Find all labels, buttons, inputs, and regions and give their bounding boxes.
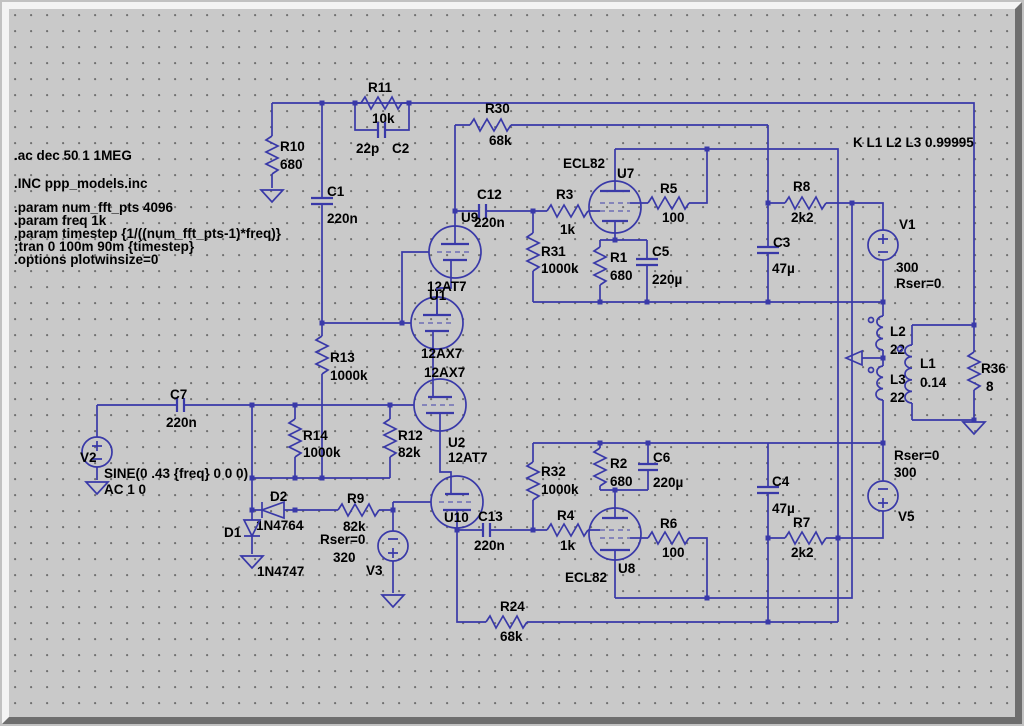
r30-value-label[interactable]: 68k <box>489 133 512 148</box>
c6-value-label[interactable]: 220µ <box>653 475 683 490</box>
r10-ref-label[interactable]: R10 <box>280 139 305 154</box>
d1-ref-label[interactable]: D1 <box>224 525 242 540</box>
r1-value-label[interactable]: 680 <box>610 268 633 283</box>
r4-value-label[interactable]: 1k <box>560 538 576 553</box>
v5-rser-label[interactable]: Rser=0 <box>894 448 939 463</box>
d1-model-label[interactable]: 1N4747 <box>257 564 304 579</box>
u7-type-label[interactable]: ECL82 <box>563 156 605 171</box>
r5-value-label[interactable]: 100 <box>662 210 685 225</box>
r12-value-label[interactable]: 82k <box>398 445 421 460</box>
l3-ref-label[interactable]: L3 <box>890 372 906 387</box>
u8-ref-label[interactable]: U8 <box>618 561 636 576</box>
r24-value-label[interactable]: 68k <box>500 629 523 644</box>
r10-value-label[interactable]: 680 <box>280 157 303 172</box>
canvas-bevel-frame: R11 10k 22p C2 R10 680 C1 220n R30 68k U… <box>2 2 1022 724</box>
u10-ref-label[interactable]: U10 <box>444 510 469 525</box>
u2-ref-label[interactable]: U2 <box>448 435 465 450</box>
u8-type-label[interactable]: ECL82 <box>565 570 607 585</box>
r12-ref-label[interactable]: R12 <box>398 428 423 443</box>
schematic-window: R11 10k 22p C2 R10 680 C1 220n R30 68k U… <box>0 0 1024 726</box>
r11-value-label[interactable]: 10k <box>372 111 395 126</box>
c2-value-label[interactable]: 22p <box>356 141 379 156</box>
l1-ref-label[interactable]: L1 <box>920 356 936 371</box>
c5-ref-label[interactable]: C5 <box>652 244 670 259</box>
r24-ref-label[interactable]: R24 <box>500 599 525 614</box>
c3-ref-label[interactable]: C3 <box>773 235 791 250</box>
v5-ref-label[interactable]: V5 <box>898 509 915 524</box>
u1-type-label[interactable]: 12AX7 <box>421 346 462 361</box>
c7-value-label[interactable]: 220n <box>166 415 197 430</box>
r13-value-label[interactable]: 1000k <box>330 368 368 383</box>
r8-ref-label[interactable]: R8 <box>793 179 811 194</box>
spice-directive[interactable]: .options plotwinsize=0 <box>14 252 158 267</box>
spice-directive[interactable]: .ac dec 50 1 1MEG <box>14 148 132 163</box>
c1-ref-label[interactable]: C1 <box>327 184 345 199</box>
v1-rser-label[interactable]: Rser=0 <box>896 276 941 291</box>
spice-directive[interactable]: .INC ppp_models.inc <box>14 176 148 191</box>
c12-value-label[interactable]: 220n <box>474 215 505 230</box>
c7-ref-label[interactable]: C7 <box>170 387 187 402</box>
r3-ref-label[interactable]: R3 <box>556 187 574 202</box>
l1-value-label[interactable]: 0.14 <box>920 375 947 390</box>
c3-value-label[interactable]: 47µ <box>772 261 795 276</box>
c13-value-label[interactable]: 220n <box>474 538 505 553</box>
c1-value-label[interactable]: 220n <box>327 211 358 226</box>
r1-ref-label[interactable]: R1 <box>610 250 628 265</box>
v3-value-label[interactable]: 320 <box>333 550 356 565</box>
l3-value-label[interactable]: 22 <box>890 390 905 405</box>
r14-ref-label[interactable]: R14 <box>303 428 328 443</box>
c5-value-label[interactable]: 220µ <box>652 272 682 287</box>
r6-value-label[interactable]: 100 <box>662 545 685 560</box>
r11-ref-label[interactable]: R11 <box>368 80 393 95</box>
v1-ref-label[interactable]: V1 <box>899 217 916 232</box>
r9-ref-label[interactable]: R9 <box>347 491 364 506</box>
v3-ref-label[interactable]: V3 <box>366 563 383 578</box>
v3-rser-label[interactable]: Rser=0 <box>320 532 365 547</box>
r13-ref-label[interactable]: R13 <box>330 350 355 365</box>
r32-ref-label[interactable]: R32 <box>541 464 566 479</box>
v2-sine-label[interactable]: SINE(0 .43 {freq} 0 0 0) <box>104 466 248 481</box>
d2-model-label[interactable]: 1N4764 <box>256 518 304 533</box>
r2-value-label[interactable]: 680 <box>610 474 633 489</box>
v2-ac-label[interactable]: AC 1 0 <box>104 482 146 497</box>
r8-value-label[interactable]: 2k2 <box>791 210 814 225</box>
u10-type-label[interactable]: 12AT7 <box>448 450 488 465</box>
u1-ref-label[interactable]: U1 <box>429 288 447 303</box>
coupling-statement[interactable]: K L1 L2 L3 0.99995 <box>853 135 974 150</box>
u7-ref-label[interactable]: U7 <box>617 166 634 181</box>
c4-value-label[interactable]: 47µ <box>772 501 795 516</box>
v1-value-label[interactable]: 300 <box>896 260 919 275</box>
r7-value-label[interactable]: 2k2 <box>791 545 814 560</box>
schematic-canvas[interactable]: R11 10k 22p C2 R10 680 C1 220n R30 68k U… <box>9 9 1015 717</box>
l2-ref-label[interactable]: L2 <box>890 324 906 339</box>
c6-ref-label[interactable]: C6 <box>653 450 671 465</box>
r36-ref-label[interactable]: R36 <box>981 361 1006 376</box>
r4-ref-label[interactable]: R4 <box>557 508 575 523</box>
r3-value-label[interactable]: 1k <box>560 222 576 237</box>
r32-value-label[interactable]: 1000k <box>541 482 579 497</box>
c13-ref-label[interactable]: C13 <box>478 509 503 524</box>
r36-value-label[interactable]: 8 <box>986 379 994 394</box>
r14-value-label[interactable]: 1000k <box>303 445 341 460</box>
r7-ref-label[interactable]: R7 <box>793 515 810 530</box>
r31-ref-label[interactable]: R31 <box>541 244 566 259</box>
c2-ref-label[interactable]: C2 <box>392 141 409 156</box>
r30-ref-label[interactable]: R30 <box>485 101 510 116</box>
d2-ref-label[interactable]: D2 <box>270 489 287 504</box>
c4-ref-label[interactable]: C4 <box>772 474 790 489</box>
c12-ref-label[interactable]: C12 <box>477 187 502 202</box>
r31-value-label[interactable]: 1000k <box>541 261 579 276</box>
r2-ref-label[interactable]: R2 <box>610 456 627 471</box>
u2-type-label[interactable]: 12AX7 <box>424 365 465 380</box>
r5-ref-label[interactable]: R5 <box>660 181 678 196</box>
v2-ref-label[interactable]: V2 <box>80 450 97 465</box>
r6-ref-label[interactable]: R6 <box>660 516 678 531</box>
v5-value-label[interactable]: 300 <box>894 465 917 480</box>
